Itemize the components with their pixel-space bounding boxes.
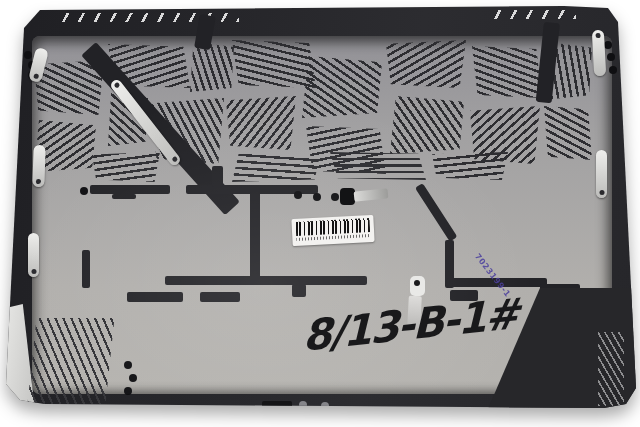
cable-grommet (340, 188, 355, 205)
barcode-bars (296, 218, 371, 236)
hinge-bracket (28, 233, 39, 277)
vent-cell (190, 42, 234, 92)
screw-boss-dot (321, 402, 329, 410)
hinge-bracket (32, 145, 45, 187)
gasket-rib (212, 166, 223, 187)
screw-boss-dot (124, 387, 132, 395)
screw-boss-dot (299, 401, 307, 409)
gasket-rib (112, 194, 136, 199)
product-photo: 7023199-1 8/13-B-1# (0, 0, 640, 427)
vent-cell (390, 96, 464, 154)
screw-boss-dot (607, 53, 615, 61)
gasket-rib (165, 276, 367, 285)
case-shadow: 7023199-1 8/13-B-1# (0, 0, 640, 427)
screw-boss-dot (604, 41, 612, 49)
screw-boss-dot (294, 191, 302, 199)
screw-boss-dot (80, 187, 88, 195)
screw-hole (113, 82, 120, 89)
gasket-rib (200, 292, 240, 302)
screw-boss-dot (313, 193, 321, 201)
vent-cell (472, 46, 542, 98)
screw-boss-dot (124, 361, 132, 369)
bottom-rim-tab (262, 401, 292, 413)
vent-cell (302, 56, 382, 118)
screw-hole (33, 73, 39, 79)
vent-cell (544, 106, 592, 160)
gasket-rib (292, 284, 306, 297)
vent-cell (432, 152, 508, 180)
gasket-rib (82, 250, 90, 288)
screw-hole (171, 156, 178, 163)
screw-hole (36, 179, 41, 184)
vent-cell (232, 152, 320, 182)
gasket-rib (250, 192, 260, 284)
speaker-grille-left (27, 318, 114, 404)
barcode-label (291, 215, 374, 246)
hinge-bracket (596, 150, 607, 198)
gasket-rib (127, 292, 183, 302)
screw-boss-dot (24, 51, 32, 59)
speaker-grille-right (598, 332, 624, 406)
screw-grommet (410, 276, 425, 296)
laptop-bottom-case: 7023199-1 8/13-B-1# (4, 6, 638, 414)
vent-cell (330, 152, 426, 180)
screw-head (414, 280, 420, 286)
screw-hole (599, 190, 604, 195)
screw-boss-dot (609, 66, 617, 74)
screw-hole (595, 33, 600, 38)
screw-hole (31, 269, 36, 274)
vent-cell (386, 40, 466, 88)
gasket-rib (90, 185, 170, 194)
vent-cell (232, 40, 316, 88)
screw-boss-dot (129, 374, 137, 382)
screw-boss-dot (331, 193, 339, 201)
hinge-bracket (592, 30, 606, 77)
vent-cell (92, 152, 160, 182)
plastic-rib-strap (415, 183, 457, 242)
vent-cell (226, 96, 296, 150)
